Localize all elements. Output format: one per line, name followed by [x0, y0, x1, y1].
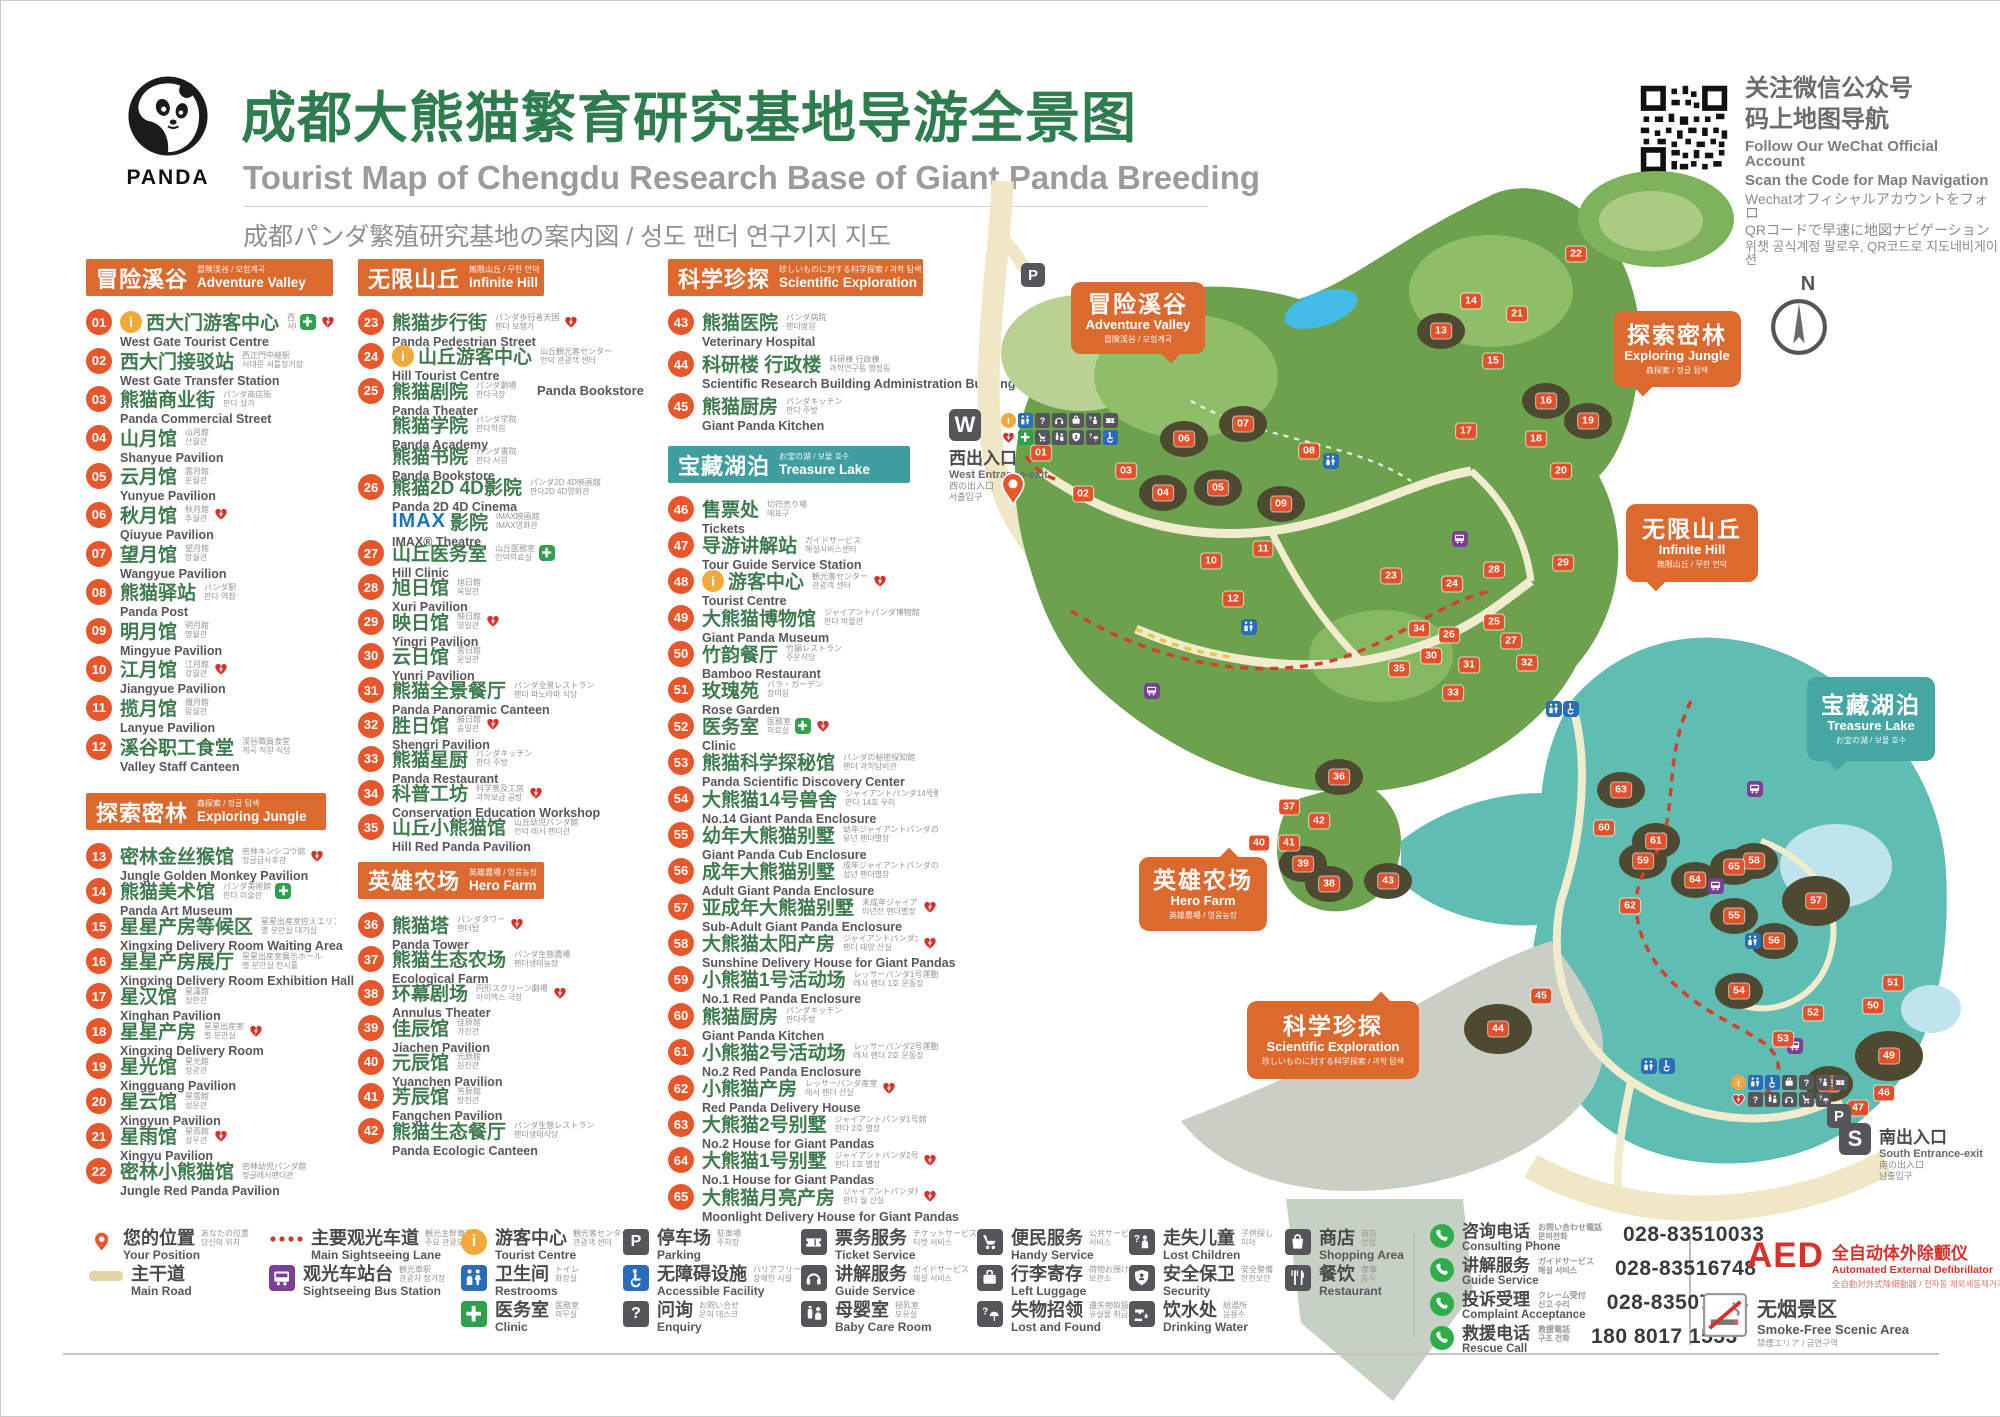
aed-icon: [872, 573, 888, 589]
name-kr: 별 분만실 대기실: [261, 926, 336, 935]
list-item-42: 42熊猫生态餐厅パンダ生態レストラン팬더생태식당Panda Ecologic C…: [358, 1117, 624, 1151]
item-name-cn: 熊猫美术馆: [120, 877, 215, 904]
item-name-cn: 大熊猫博物馆: [702, 604, 816, 631]
name-kr: 팬더생태농장: [514, 959, 570, 968]
restaurant-icon: [1285, 1265, 1311, 1291]
callout-cn: 科学珍探: [1253, 1013, 1413, 1039]
panda-logo-icon: [125, 73, 211, 159]
callout-cn: 宝藏湖泊: [1813, 692, 1929, 718]
legend-item-accessible: 无障碍设施バリアフリー施設장애인 시설Accessible Facility: [623, 1265, 817, 1298]
name-jp-kr: クレーム受付신고 수리: [1538, 1291, 1586, 1309]
name-kr: 가진관: [457, 1027, 481, 1036]
item-name-en: Moonlight Delivery House for Giant Panda…: [702, 1210, 938, 1224]
name-jp-kr: 子供探し미아: [1241, 1229, 1273, 1247]
name-jp-kr: パンダキッチン판다 주방: [786, 397, 842, 415]
map-marker-54: 54: [1729, 984, 1749, 999]
name-jp-kr: パンダ病院팬더병원: [786, 313, 826, 331]
name-jp-kr: 安全警備안전보안: [1241, 1265, 1273, 1283]
map-marker-33: 33: [1443, 686, 1463, 701]
name-jp-kr: パンダ駅판다 역참: [204, 583, 236, 601]
item-number-badge: 05: [86, 463, 112, 489]
name-kr: 망월관: [185, 553, 209, 562]
wc-icon: [1745, 933, 1761, 949]
map-marker-42: 42: [1309, 814, 1329, 829]
name-kr: 구조 전화: [1538, 1334, 1570, 1343]
name-jp: パンダキッチン: [476, 749, 532, 758]
name-jp-kr: 科学普及工房과학보급 공방: [476, 784, 524, 802]
legend-item-children: ?走失儿童子供探し미아Lost Children: [1129, 1229, 1273, 1262]
item-name-cn: 密林金丝猴馆: [120, 842, 234, 869]
item-name-cn: 元辰馆: [392, 1048, 449, 1075]
name-jp: 佳辰館: [457, 1018, 481, 1027]
list-item-06: 06秋月馆秋月館추월관Qiuyue Pavilion: [86, 501, 336, 540]
item-name-cn: 胜日馆: [392, 711, 449, 738]
item-name-cn: 熊猫商业街: [120, 385, 215, 412]
name-jp-kr: 幼年ジャイアントパンダの生活エリア유년 팬더별장: [843, 825, 938, 843]
callout-sub: 冒険渓谷 / 모험계곡: [1077, 334, 1199, 345]
list-item-64: 64大熊猫1号别墅ジャイアントパンダ2号館판다 1호 별장No.1 House …: [668, 1146, 938, 1182]
list-item-10: 10江月馆江月館강월관Jiangyue Pavilion: [86, 655, 336, 694]
region-callout-scientific-exploration: 科学珍探Scientific Exploration珍しいものに対する科学探索 …: [1247, 1001, 1419, 1079]
map-marker-51: 51: [1883, 976, 1903, 991]
legend-cn: 餐饮: [1319, 1265, 1355, 1284]
list-item-50: 50竹韵餐厅竹韻レストラン주운식당Bamboo Restaurant: [668, 640, 938, 676]
name-kr: 화장실: [555, 1274, 579, 1283]
info-icon: i: [1731, 1075, 1746, 1090]
legend-en: Your Position: [123, 1248, 249, 1262]
lane-icon: [269, 1234, 303, 1244]
list-item-16: 16星星产房展厅星星出産室展示ホール별 분만실 전시홀Xingxing Deli…: [86, 947, 336, 982]
name-jp-kr: チケットサービス티켓 서비스: [913, 1229, 977, 1247]
name-jp: パンダキッチン: [786, 397, 842, 406]
name-jp-kr: 旭日館욱일관: [457, 578, 481, 596]
legend-item-luggage: 行李寄存荷物お預け보관소Left Luggage: [977, 1265, 1129, 1298]
callout-en: Hero Farm: [1145, 893, 1261, 908]
name-kr: 신고 수리: [1538, 1300, 1586, 1309]
item-number-badge: 40: [358, 1049, 384, 1075]
map-marker-07: 07: [1233, 417, 1253, 432]
name-jp: 旭日館: [457, 578, 481, 587]
phone-icon: [1429, 1291, 1455, 1322]
map-marker-57: 57: [1806, 894, 1826, 909]
item-number-badge: 48: [668, 568, 694, 594]
entrance-cn: 南出入口: [1879, 1123, 1983, 1148]
aed-icon: [1731, 1092, 1746, 1107]
name-jp-kr: パンダの秘密探知館팬더 과학탐비관: [843, 753, 915, 771]
map-marker-22: 22: [1566, 247, 1586, 262]
section-header-adventure-valley: 冒险溪谷冒険渓谷 / 모험계곡Adventure Valley: [86, 259, 333, 296]
entrance-jp: 南の出入口: [1879, 1160, 1983, 1171]
section-hero-farm: 英雄农场英雄農場 / 영웅농장Hero Farm36熊猫塔パンダタワー팬더탑Pa…: [358, 862, 624, 1151]
item-number-badge: 42: [358, 1118, 384, 1144]
name-jp-kr: 雲月館운월관: [185, 467, 209, 485]
phone-en: Complaint Acceptance: [1462, 1309, 1586, 1321]
item-number-badge: 62: [668, 1075, 694, 1101]
name-kr: 해설서비스센터: [805, 545, 861, 554]
legend-cn: 便民服务: [1011, 1229, 1083, 1248]
name-kr: 미년전 팬더별장: [862, 907, 918, 916]
name-jp: 星光館: [185, 1057, 209, 1066]
legend-en: Clinic: [495, 1320, 579, 1334]
clinic-icon: [795, 718, 811, 734]
item-name-cn: 熊猫生态农场: [392, 945, 506, 972]
name-jp: パンダキッチン: [786, 1006, 842, 1015]
smoke-free-sub: 禁煙エリア / 금연구역: [1757, 1337, 1909, 1349]
name-jp-kr: 密林キンシコウ館정글금사후관: [242, 847, 305, 865]
name-jp: パンダ生態レストラン: [514, 1121, 594, 1130]
item-number-badge: 27: [358, 540, 384, 566]
map-marker-12: 12: [1223, 592, 1243, 607]
aed-icon: [563, 314, 579, 330]
accessible-icon: [1659, 1058, 1675, 1074]
name-jp-kr: お問い合わせ電話문의전화: [1538, 1223, 1602, 1241]
name-jp: 星星出産室控えエリア: [261, 917, 336, 926]
name-jp: ジャイアントパンダ月産室: [843, 1187, 918, 1196]
entrance-kr: 남출입구: [1879, 1171, 1983, 1182]
item-number-badge: 11: [86, 695, 112, 721]
bus-icon: [1747, 781, 1763, 797]
legend-en: Lost and Found: [1011, 1320, 1137, 1334]
section-title-en: Hero Farm: [469, 879, 537, 893]
item-name-cn: 映日馆: [392, 608, 449, 635]
name-jp-kr: パンダ書院판다 서원: [476, 447, 516, 465]
name-jp: ガイドサービス: [805, 536, 861, 545]
map-marker-47: 47: [1848, 1101, 1868, 1116]
legend-cn: 观光车站台: [303, 1265, 393, 1284]
name-jp: 商店: [1361, 1229, 1377, 1238]
list-item-20: 20星云馆星雲館성운관Xingyun Pavilion: [86, 1087, 336, 1122]
name-kr: 팬더 태양 산실: [843, 943, 918, 952]
legend-en: Parking: [657, 1248, 741, 1262]
map-marker-63: 63: [1611, 783, 1631, 798]
item-number-badge: 43: [668, 309, 694, 335]
legend-en: Enquiry: [657, 1320, 739, 1334]
legend-cn: 票务服务: [835, 1229, 907, 1248]
list-item-37: 37熊猫生态农场パンダ生態農場팬더생태농장Ecological Farm: [358, 945, 624, 979]
item-name-en: Scientific Research Building Administrat…: [702, 377, 938, 391]
aed-icon: [213, 506, 229, 522]
name-jp-kr: 秋月館추월관: [185, 505, 209, 523]
map-marker-52: 52: [1803, 1006, 1823, 1021]
callout-cn: 探索密林: [1619, 322, 1735, 348]
name-jp: 星雨館: [185, 1127, 209, 1136]
callout-en: Scientific Exploration: [1253, 1039, 1413, 1054]
item-number-badge: 41: [358, 1083, 384, 1109]
item-name-cn: 山月馆: [120, 424, 177, 451]
name-jp: 山丘幼児パンダ館: [514, 818, 578, 827]
accessible-icon: [1765, 1075, 1780, 1090]
name-kr: 판다 월 산실: [843, 1196, 918, 1205]
smoke-free-cn: 无烟景区: [1757, 1293, 1909, 1322]
name-kr: 욱일관: [457, 587, 481, 596]
list-item-15: 15星星产房等候区星星出産室控えエリア별 분만실 대기실Xingxing Del…: [86, 912, 336, 947]
name-jp: パンダ病院: [786, 313, 826, 322]
phone-cn: 讲解服务: [1462, 1257, 1530, 1275]
legend-en: Left Luggage: [1011, 1284, 1129, 1298]
name-kr: 판다 미술관: [223, 891, 271, 900]
name-jp-kr: お問い合せ문의 데스크: [699, 1301, 739, 1319]
name-jp-kr: 星星出産室별 분만실: [204, 1022, 244, 1040]
entrance-letter: S: [1839, 1123, 1871, 1155]
name-jp-kr: パンダ学院판다학원: [476, 415, 516, 433]
aed-icon: [815, 718, 831, 734]
item-number-badge: 10: [86, 656, 112, 682]
handy-icon: [977, 1229, 1003, 1255]
map-marker-26: 26: [1439, 628, 1459, 643]
phone-cn: 咨询电话: [1462, 1223, 1530, 1241]
name-jp-kr: 駐車場주차장: [717, 1229, 741, 1247]
item-name-cn: 售票处: [702, 495, 759, 522]
name-jp-kr: ジャイアントパンダ2号館판다 1호 별장: [835, 1151, 918, 1169]
name-kr: 관광객 센터: [812, 581, 868, 590]
name-jp: 星漢館: [185, 987, 209, 996]
list-item-22: 22密林小熊猫馆密林幼児パンダ館정글레서팬더관Jungle Red Panda …: [86, 1157, 336, 1192]
item-name-cn: 小熊猫2号活动场: [702, 1038, 846, 1065]
entrance-letter: W: [949, 409, 981, 441]
name-kr: 판다 2호 별장: [835, 1124, 927, 1133]
name-kr: 관광객 센터: [573, 1238, 629, 1247]
name-jp: 映日館: [457, 612, 481, 621]
name-jp: 授乳室: [895, 1301, 919, 1310]
name-jp-kr: 山丘医務室언덕의료실: [495, 544, 535, 562]
name-jp: 明月館: [185, 621, 209, 630]
lostfound-icon: ?: [1816, 1092, 1831, 1107]
map-marker-56: 56: [1764, 934, 1784, 949]
name-jp-kr: 明月館명월관: [185, 621, 209, 639]
map-marker-31: 31: [1459, 658, 1479, 673]
item-number-badge: 65: [668, 1184, 694, 1210]
name-kr: IMAX영화관: [496, 521, 540, 530]
item-name-cn: 西大门游客中心: [146, 308, 279, 335]
name-jp-kr: トイレ화장실: [555, 1265, 579, 1283]
list-item-65: 65大熊猫月亮产房ジャイアントパンダ月産室판다 월 산실Moonlight De…: [668, 1183, 938, 1219]
item-name-cn: 云日馆: [392, 642, 449, 669]
map-marker-61: 61: [1646, 834, 1666, 849]
map-marker-29: 29: [1553, 556, 1573, 571]
section-subtitle: 無限山丘 / 무한 언덕: [469, 266, 539, 274]
name-jp-kr: 芳辰館방진관: [457, 1087, 481, 1105]
legend-cn: 卫生间: [495, 1265, 549, 1284]
legend-cn: 医务室: [495, 1301, 549, 1320]
item-number-badge: 35: [358, 814, 384, 840]
map-marker-46: 46: [1874, 1086, 1894, 1101]
name-kr: 성한관: [185, 996, 209, 1005]
name-jp-kr: ガイドサービス해설 서비스: [913, 1265, 969, 1283]
aed-icon: [248, 1023, 264, 1039]
name-jp-kr: 星雨館성우관: [185, 1127, 209, 1145]
list-item-01: 01i西大门游客中心西正門観光客センター서대문 고객센터West Gate To…: [86, 308, 336, 347]
name-jp: お問い合せ: [699, 1301, 739, 1310]
item-number-badge: 51: [668, 677, 694, 703]
legend-item-handy: 便民服务公共サービス서비스Handy Service: [977, 1229, 1137, 1262]
name-kr: 정글레서팬더관: [242, 1171, 306, 1180]
accessible-icon: [1103, 430, 1118, 445]
item-name-cn: 西大门接驳站: [120, 347, 234, 374]
entrance-cn: 西出入口: [949, 444, 1048, 469]
section-title-en: Exploring Jungle: [197, 810, 307, 824]
aed-cn: 全自动体外除颤仪: [1832, 1239, 2000, 1264]
item-number-badge: 54: [668, 786, 694, 812]
name-kr: 음식: [1361, 1274, 1377, 1283]
section-infinite-hill: 无限山丘無限山丘 / 무한 언덕Infinite Hill23熊猫步行街パンダ歩…: [358, 259, 624, 848]
item-name-cn: 大熊猫14号兽舍: [702, 785, 837, 812]
name-jp: パンダ商店街: [223, 390, 271, 399]
name-jp: 西正門中継駅: [242, 351, 303, 360]
list-item-36: 36熊猫塔パンダタワー팬더탑Panda Tower: [358, 911, 624, 945]
section-subtitle: 森探索 / 정글 탐색: [197, 800, 307, 808]
name-jp: お問い合わせ電話: [1538, 1223, 1602, 1232]
item-number-badge: 23: [358, 309, 384, 335]
name-jp-kr: あなたの位置당신의 위치: [201, 1229, 249, 1247]
name-kr: 원진관: [457, 1061, 481, 1070]
wc-icon: [1241, 619, 1257, 635]
name-kr: 모유실: [895, 1310, 919, 1319]
lostfound-icon: ?: [977, 1301, 1003, 1327]
item-number-badge: 21: [86, 1123, 112, 1149]
name-jp-kr: 救援電話구조 전화: [1538, 1325, 1570, 1343]
name-jp-kr: 西正門観光客センター서대문 고객센터: [287, 313, 296, 331]
name-kr: 주차장: [717, 1238, 741, 1247]
name-kr: 레서 팬더 2호 운동장: [854, 1051, 938, 1060]
name-kr: 승일관: [457, 724, 481, 733]
legend-cn: 问询: [657, 1301, 693, 1320]
compass-north-label: N: [1785, 273, 1831, 296]
list-item-34: 34科普工坊科学普及工房과학보급 공방Conservation Educatio…: [358, 779, 624, 813]
name-kr: 안전보안: [1241, 1274, 1273, 1283]
list-item-48: 48i游客中心観光客センター관광객 센터Tourist Centre: [668, 567, 938, 603]
phone-icon: [1429, 1325, 1455, 1356]
section-header-hero-farm: 英雄农场英雄農場 / 영웅농장Hero Farm: [358, 862, 544, 899]
bus-icon: [269, 1265, 295, 1291]
name-kr: 별 분만실 전시홀: [242, 961, 322, 970]
legend-item-security: 安全保卫安全警備안전보안Security: [1129, 1265, 1273, 1298]
region-callout-exploring-jungle: 探索密林Exploring Jungle森探索 / 정글 탐색: [1613, 311, 1741, 387]
list-item-18: 18星星产房星星出産室별 분만실Xingxing Delivery Room: [86, 1017, 336, 1052]
phone-icon: [1429, 1257, 1455, 1288]
name-kr: 상점: [1361, 1238, 1377, 1247]
name-kr: 음용수: [1223, 1310, 1247, 1319]
name-jp-kr: 勝日館승일관: [457, 715, 481, 733]
map-marker-03: 03: [1116, 464, 1136, 479]
phone-cn: 投诉受理: [1462, 1291, 1530, 1309]
map-marker-30: 30: [1421, 649, 1441, 664]
item-name-cn: 小熊猫产房: [702, 1074, 797, 1101]
callout-cn: 冒险溪谷: [1077, 291, 1199, 317]
name-jp-kr: 荷物お預け보관소: [1089, 1265, 1129, 1283]
item-name-cn: 江月馆: [120, 655, 177, 682]
item-name-cn: 熊猫步行街: [392, 308, 487, 335]
map-marker-58: 58: [1744, 854, 1764, 869]
list-item-56: 56成年大熊猫别墅成年ジャイアントパンダの生活エリア성년 팬더별장Adult G…: [668, 857, 938, 893]
wc-icon: [1546, 701, 1562, 717]
name-jp: 科研棟 行政棟: [829, 355, 890, 364]
name-jp-kr: レッサーパンダ産室레서 팬더 산실: [805, 1079, 877, 1097]
name-jp: 荷物お預け: [1089, 1265, 1129, 1274]
guide-icon: [1782, 1092, 1797, 1107]
enquiry-icon: ?: [1799, 1075, 1814, 1090]
map-marker-37: 37: [1279, 800, 1299, 815]
clinic-icon: [275, 883, 291, 899]
map-marker-09: 09: [1271, 497, 1291, 512]
name-jp-kr: 食事음식: [1361, 1265, 1377, 1283]
item-name-cn: 熊猫塔: [392, 911, 449, 938]
phone-en: Rescue Call: [1462, 1343, 1570, 1355]
region-callout-adventure-valley: 冒险溪谷Adventure Valley冒険渓谷 / 모험계곡: [1071, 282, 1205, 354]
section-treasure-lake: 宝藏湖泊お宝の湖 / 보물 호수Treasure Lake46售票处切符売り場매…: [668, 446, 938, 1219]
name-jp: IMAX映画館: [496, 512, 540, 521]
name-jp: あなたの位置: [201, 1229, 249, 1238]
item-number-badge: 53: [668, 749, 694, 775]
name-jp: ジャイアントパンダ1号館: [835, 1115, 927, 1124]
list-item-57: 57亚成年大熊猫别墅未成年ジャイアントパンダの生活エリア미년전 팬더별장Sub-…: [668, 893, 938, 929]
name-jp: 観光車駅: [399, 1265, 445, 1274]
map-marker-14: 14: [1461, 294, 1481, 309]
map-marker-35: 35: [1389, 662, 1409, 677]
item-name-en: Panda Ecologic Canteen: [392, 1144, 594, 1158]
name-jp: トイレ: [555, 1265, 579, 1274]
section-title-en: Infinite Hill: [469, 276, 539, 290]
imax-logo: IMAX: [392, 510, 446, 533]
name-jp-kr: 未成年ジャイアントパンダの生活エリア미년전 팬더별장: [862, 898, 918, 916]
qr-caption-cn1: 关注微信公众号: [1745, 77, 2000, 101]
list-item-05: 05云月馆雲月館운월관Yunyue Pavilion: [86, 462, 336, 501]
legend-item-ticket: 票务服务チケットサービス티켓 서비스Ticket Service: [801, 1229, 977, 1262]
name-kr: 성년 팬더별장: [843, 870, 938, 879]
pin-icon: [89, 1229, 115, 1255]
name-jp-kr: 星星出産室展示ホール별 분만실 전시홀: [242, 952, 322, 970]
item-number-badge: 28: [358, 574, 384, 600]
name-jp-kr: 成年ジャイアントパンダの生活エリア성년 팬더별장: [843, 861, 938, 879]
name-jp: レッサーパンダ1号運動場: [854, 970, 938, 979]
item-number-badge: 60: [668, 1003, 694, 1029]
region-callout-treasure-lake: 宝藏湖泊Treasure Lakeお宝の湖 / 보물 호수: [1807, 677, 1935, 761]
legend-en: Security: [1163, 1284, 1273, 1298]
name-kr: 판다극장: [476, 390, 516, 399]
name-jp: 勝日館: [457, 715, 481, 724]
name-jp: 江月館: [185, 660, 209, 669]
item-name-cn: 芳辰馆: [392, 1082, 449, 1109]
item-name-cn: 佳辰馆: [392, 1014, 449, 1041]
list-item-33: 33熊猫星厨パンダキッチン판다 주방Panda Restaurant: [358, 745, 624, 779]
name-kr: 방진관: [457, 1096, 481, 1105]
name-jp-kr: ジャイアントパンダ14号獣舎판다 14호 우리: [845, 789, 938, 807]
item-name-cn: 幼年大熊猫别墅: [702, 821, 835, 848]
name-jp: パンダ書院: [476, 447, 516, 456]
name-jp-kr: 星雲館성운관: [185, 1092, 209, 1110]
legend-item-parking: P停车场駐車場주차장Parking: [623, 1229, 741, 1262]
name-kr: 의료실: [767, 726, 791, 735]
item-number-badge: 33: [358, 746, 384, 772]
clinic-icon: [539, 545, 555, 561]
item-name-en: Valley Staff Canteen: [120, 760, 291, 774]
item-number-badge: 22: [86, 1158, 112, 1184]
bus-icon: [1708, 878, 1724, 894]
item-name-cn: 成年大熊猫别墅: [702, 857, 835, 884]
name-jp: 芳辰館: [457, 1087, 481, 1096]
item-number-badge: 09: [86, 618, 112, 644]
item-name-cn: 星星产房展厅: [120, 947, 234, 974]
name-kr: 문의전화: [1538, 1232, 1602, 1241]
item-name-cn: 大熊猫1号别墅: [702, 1146, 827, 1173]
callout-sub: 珍しいものに対する科学探索 / 과학 탐색: [1253, 1056, 1413, 1067]
item-name-cn: 星汉馆: [120, 982, 177, 1009]
legend-item-enquiry: ?问询お問い合せ문의 데스크Enquiry: [623, 1301, 739, 1334]
list-item-60: 60熊猫厨房パンダキッチン판다주방Giant Panda Kitchen: [668, 1002, 938, 1038]
name-kr: 티켓 서비스: [913, 1238, 977, 1247]
item-number-badge: 17: [86, 983, 112, 1009]
name-jp: 未成年ジャイアントパンダの生活エリア: [862, 898, 918, 907]
name-jp: パンダ劇場: [476, 381, 516, 390]
